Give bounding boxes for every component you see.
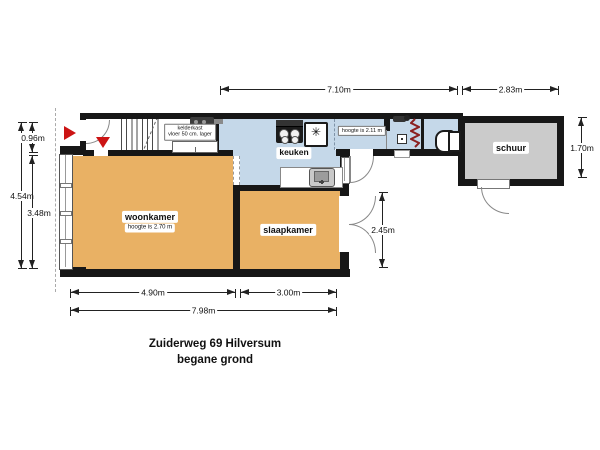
freezer-icon: ✳ xyxy=(304,122,328,147)
drain-dot xyxy=(401,138,403,140)
dim-left-entry-value: 0.96m xyxy=(19,133,47,143)
schuur-door-swing-arc xyxy=(481,187,509,214)
sink-faucet-stem xyxy=(321,180,323,184)
wall-shower-toilet xyxy=(421,119,424,149)
dim-left-living: 3.48m xyxy=(32,155,33,269)
dim-top-main: 7.10m xyxy=(220,89,458,90)
dim-bottom-bedroom: 3.00m xyxy=(240,292,337,293)
window-glass-line xyxy=(344,158,345,181)
plan-title-line2: begane grond xyxy=(115,353,315,369)
boundary-dashed-line xyxy=(55,108,56,292)
dim-bottom-bedroom-value: 3.00m xyxy=(275,288,303,298)
dim-bottom-living: 4.90m xyxy=(70,292,236,293)
dim-left-entry: 0.96m xyxy=(32,122,33,153)
shower-door-panel xyxy=(386,130,387,149)
slaapkamer-label: slaapkamer xyxy=(260,224,316,236)
woonkamer-height-note: hoogte is 2.70 m xyxy=(125,224,175,233)
dim-top-main-value: 7.10m xyxy=(325,85,353,95)
stove-panel xyxy=(276,120,303,127)
woonkamer-window-band xyxy=(59,154,73,270)
toilet-tank xyxy=(448,131,461,152)
kelderkast-cabinet xyxy=(172,141,218,153)
dim-right-bedroom-value: 2.45m xyxy=(369,225,397,235)
dim-right-shed: 1.70m xyxy=(581,117,582,178)
dim-bottom-living-value: 4.90m xyxy=(139,288,167,298)
dim-right-bedroom: 2.45m xyxy=(382,192,383,268)
window-mullion xyxy=(60,239,72,244)
burner xyxy=(291,136,299,144)
dim-top-shed: 2.83m xyxy=(462,89,559,90)
kelderkast-label-line2: vloer 50 cm. lager xyxy=(168,132,212,138)
burner xyxy=(281,136,289,144)
window-mullion xyxy=(60,183,72,188)
entry-direction-arrow-icon xyxy=(96,137,110,148)
sink-icon xyxy=(309,168,335,187)
entrance-arrow-icon xyxy=(64,126,76,140)
radiator-icon xyxy=(410,118,420,149)
kelderkast-label: kelderkast vloer 50 cm. lager xyxy=(164,124,216,141)
dim-left-total: 4.54m xyxy=(21,122,22,269)
plan-title-line1: Zuiderweg 69 Hilversum xyxy=(115,337,315,353)
wall-bottom xyxy=(60,269,350,277)
french-door-top-arc xyxy=(349,196,376,225)
stairs-icon xyxy=(121,119,162,150)
dim-top-shed-value: 2.83m xyxy=(497,85,525,95)
dim-bottom-total-value: 7.98m xyxy=(190,306,218,316)
floorplan-canvas: kelderkast vloer 50 cm. lager ✳ woonkame… xyxy=(0,0,600,450)
woonkamer-label: woonkamer xyxy=(122,211,178,223)
threshold-mat xyxy=(394,150,410,158)
dim-left-living-value: 3.48m xyxy=(25,208,53,218)
stove-icon xyxy=(276,120,303,143)
back-door-swing-arc xyxy=(350,156,374,183)
plan-title: Zuiderweg 69 Hilversum begane grond xyxy=(115,337,315,368)
drain-icon xyxy=(397,134,407,144)
back-door-opening xyxy=(350,149,373,156)
keuken-hal-passage-dashed xyxy=(334,119,335,150)
window-mullion xyxy=(60,211,72,216)
wall-woonkamer-slaapkamer xyxy=(233,191,240,269)
hal-height-note: hoogte is 2.11 m xyxy=(338,126,386,136)
entry-woonkamer-door-opening xyxy=(94,150,108,156)
dim-right-shed-value: 1.70m xyxy=(568,143,596,153)
dim-bottom-total: 7.98m xyxy=(70,310,337,311)
schuur-label: schuur xyxy=(493,142,529,154)
keuken-label: keuken xyxy=(276,147,311,159)
cabinet-divider xyxy=(195,147,196,152)
woonkamer-keuken-opening-dashed xyxy=(233,156,240,185)
back-door-panel xyxy=(349,156,351,182)
